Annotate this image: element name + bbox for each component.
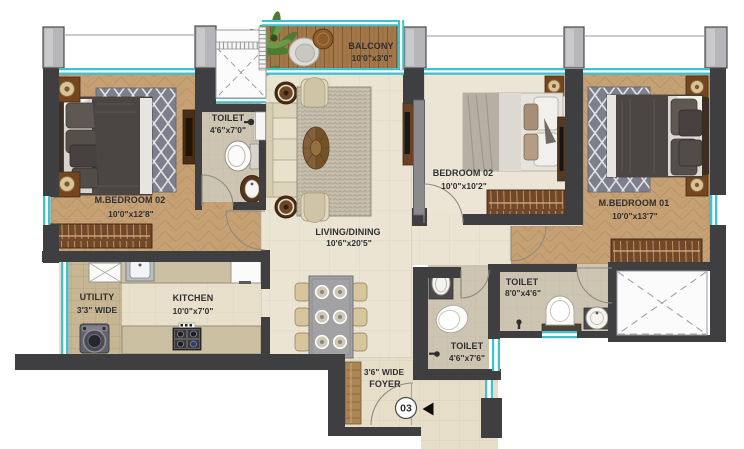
svg-text:BALCONY: BALCONY bbox=[348, 41, 393, 51]
svg-text:10'0"x3'0": 10'0"x3'0" bbox=[352, 53, 393, 63]
svg-text:M.BEDROOM 01: M.BEDROOM 01 bbox=[599, 198, 670, 208]
svg-text:UTILITY: UTILITY bbox=[80, 292, 115, 302]
svg-text:FOYER: FOYER bbox=[369, 379, 401, 389]
svg-text:TOILET: TOILET bbox=[506, 277, 539, 287]
svg-text:4'6"x7'0": 4'6"x7'0" bbox=[210, 125, 246, 135]
svg-text:10'0"x7'0": 10'0"x7'0" bbox=[173, 306, 214, 316]
svg-text:M.BEDROOM 02: M.BEDROOM 02 bbox=[95, 195, 166, 205]
svg-text:8'0"x4'6": 8'0"x4'6" bbox=[505, 288, 541, 298]
svg-text:10'0"x13'7": 10'0"x13'7" bbox=[612, 211, 658, 221]
svg-text:TOILET: TOILET bbox=[451, 341, 484, 351]
svg-text:4'6"x7'6": 4'6"x7'6" bbox=[449, 353, 485, 363]
svg-text:10'0"x12'8": 10'0"x12'8" bbox=[108, 209, 154, 219]
svg-text:10'0"x10'2": 10'0"x10'2" bbox=[441, 181, 487, 191]
svg-text:03: 03 bbox=[400, 403, 412, 415]
svg-text:LIVING/DINING: LIVING/DINING bbox=[315, 227, 380, 237]
svg-text:3'6" WIDE: 3'6" WIDE bbox=[364, 367, 405, 377]
svg-text:BEDROOM 02: BEDROOM 02 bbox=[433, 168, 494, 178]
svg-text:KITCHEN: KITCHEN bbox=[173, 293, 214, 303]
svg-text:3'3" WIDE: 3'3" WIDE bbox=[77, 305, 118, 315]
svg-text:10'6"x20'5": 10'6"x20'5" bbox=[326, 238, 372, 248]
svg-text:TOILET: TOILET bbox=[212, 113, 245, 123]
